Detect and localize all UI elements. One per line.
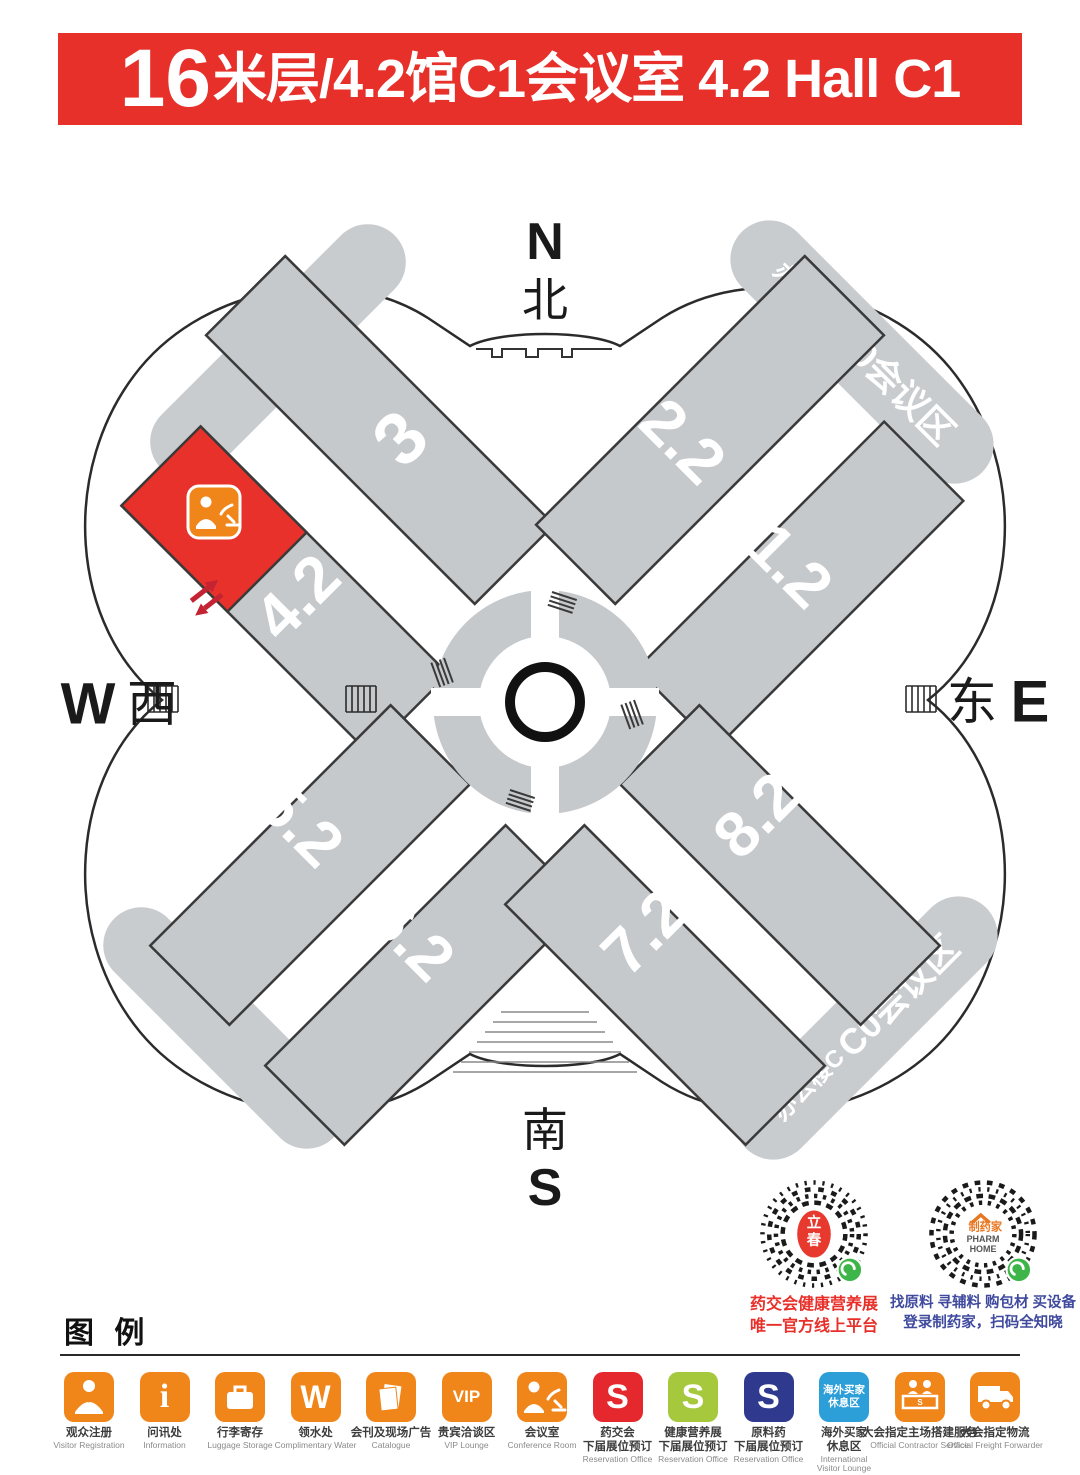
reservation-s-navy-icon: S (744, 1372, 794, 1422)
speaker-icon (517, 1372, 567, 1422)
qr-caption-right: 找原料 寻辅料 购包材 买设备 登录制药家，扫码全知晓 (890, 1294, 1076, 1333)
legend-health-reservation: S 健康营养展下届展位预订 Reservation Office (656, 1372, 730, 1474)
reservation-s-green-icon: S (668, 1372, 718, 1422)
qr-caption-left-line2: 唯一官方线上平台 (750, 1316, 878, 1338)
legend-row: 观众注册 Visitor Registration i 问讯处 Informat… (52, 1372, 1032, 1474)
legend-conference-room: 会议室 Conference Room (505, 1372, 579, 1474)
compass-south-cn: 南 (522, 1104, 568, 1156)
compass-n: N (526, 213, 564, 271)
service-desk-icon: S (895, 1372, 945, 1422)
qr-caption-right-line2: 登录制药家，扫码全知晓 (890, 1314, 1076, 1334)
water-icon: W (291, 1372, 341, 1422)
person-badge-icon (64, 1372, 114, 1422)
qr-caption-right-line1: 找原料 寻辅料 购包材 买设备 (890, 1294, 1076, 1314)
vip-icon: VIP (442, 1372, 492, 1422)
qr-code-lichun: 立 春 (758, 1178, 870, 1290)
qr-card-lichun: 立 春 药交会健康营养展 唯一官方线上平台 (742, 1178, 886, 1337)
compass-east-cn: 东 (947, 674, 997, 730)
compass-west-cn: 西 (127, 676, 177, 732)
legend-vip-lounge: VIP 贵宾洽谈区 VIP Lounge (430, 1372, 504, 1474)
papers-icon (366, 1372, 416, 1422)
svg-text:S: S (917, 1398, 923, 1407)
qr-logo-char2: 春 (807, 1231, 822, 1249)
qr-code-pharmhome: 制药家 PHARM HOME (927, 1178, 1039, 1290)
info-icon: i (140, 1372, 190, 1422)
legend-freight-forwarder: 大会指定物流 Official Freight Forwarder (958, 1372, 1032, 1474)
overseas-lounge-icon: 海外买家 休息区 (819, 1372, 869, 1422)
legend-international-lounge: 海外买家 休息区 海外买家休息区 InternationalVisitor Lo… (807, 1372, 881, 1474)
qr-logo-name: 制药家 (968, 1220, 1002, 1234)
south-entrance-steps (453, 1012, 637, 1072)
legend-header: 图 例 (64, 1308, 150, 1352)
qr-logo-sub2: HOME (970, 1244, 997, 1254)
qr-caption-left: 药交会健康营养展 唯一官方线上平台 (750, 1294, 878, 1337)
legend-visitor-registration: 观众注册 Visitor Registration (52, 1372, 126, 1474)
conference-room-icon (188, 486, 240, 538)
legend-api-reservation: S 原料药下届展位预订 Reservation Office (732, 1372, 806, 1474)
compass-north-cn: 北 (522, 274, 568, 326)
qr-card-pharmhome: 制药家 PHARM HOME 找原料 寻辅料 购包材 买设备 登录制药家，扫码全… (894, 1178, 1072, 1337)
legend-catalogue: 会刊及现场广告 Catalogue (354, 1372, 428, 1474)
compass-w: W (61, 672, 116, 737)
legend-divider (60, 1354, 1020, 1356)
qr-logo-sub1: PHARM (967, 1234, 1000, 1244)
legend-contractor-service: S 大会指定主场搭建服务 Official Contractor Service (883, 1372, 957, 1474)
compass-e: E (1011, 670, 1050, 735)
qr-zone: 立 春 药交会健康营养展 唯一官方线上平台 制药家 PHARM HOME (742, 1178, 1072, 1337)
qr-logo-char1: 立 (807, 1213, 822, 1231)
qr-caption-left-line1: 药交会健康营养展 (750, 1294, 878, 1316)
legend-information: i 问讯处 Information (128, 1372, 202, 1474)
east-entrance-walkway (906, 686, 936, 712)
suitcase-icon (215, 1372, 265, 1422)
truck-icon (970, 1372, 1020, 1422)
legend-complimentary-water: W 领水处 Complimentary Water (279, 1372, 353, 1474)
legend-luggage-storage: 行李寄存 Luggage Storage (203, 1372, 277, 1474)
north-entrance-edge (476, 349, 612, 357)
legend-pharma-reservation: S 药交会下届展位预订 Reservation Office (581, 1372, 655, 1474)
reservation-s-red-icon: S (593, 1372, 643, 1422)
compass-s: S (528, 1159, 563, 1217)
